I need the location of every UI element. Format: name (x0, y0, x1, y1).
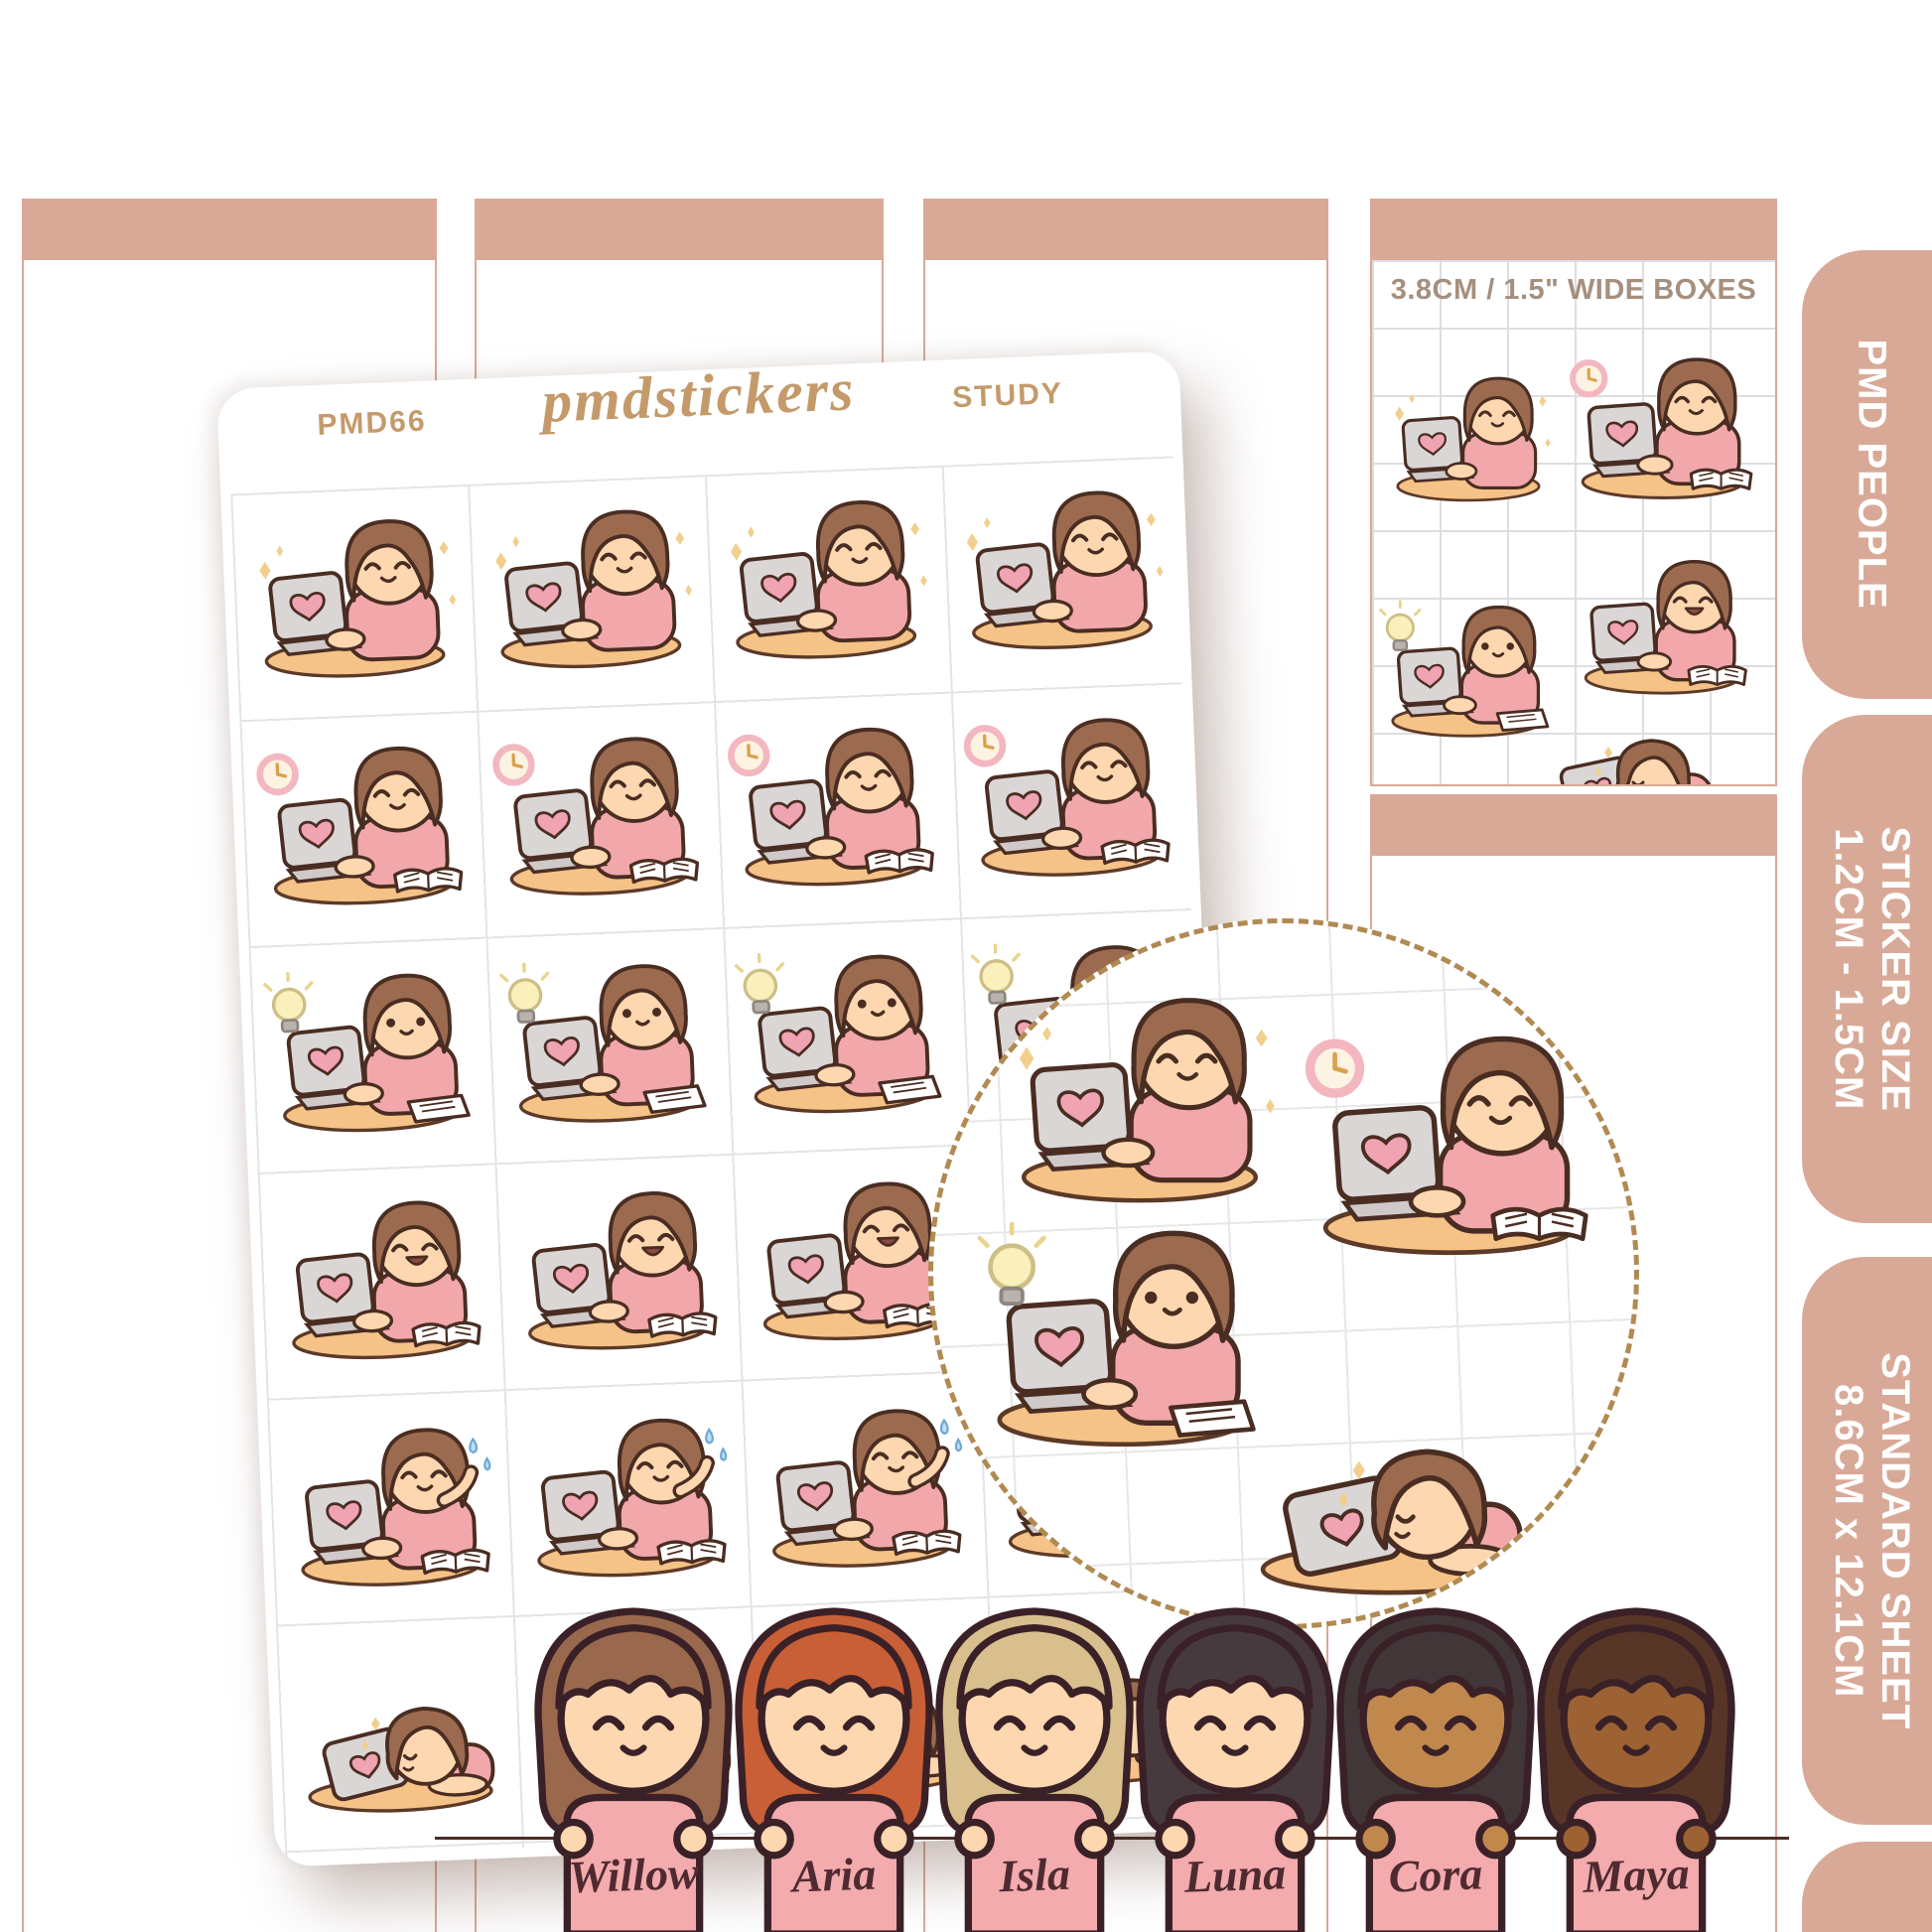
sticker-clock-book (1295, 1027, 1604, 1275)
character-name-luna: Luna (1125, 1845, 1345, 1905)
character-row: Willow Aria Isla Luna Cora Maya (427, 1579, 1807, 1932)
tab-label: 8.6CM x 12.1CM (1825, 1352, 1871, 1729)
wide-box-sample: 3.8CM / 1.5" WIDE BOXES (1370, 199, 1777, 786)
tab-sticker-size: STICKER SIZE 1.2CM - 1.5CM (1802, 715, 1932, 1223)
sticker-bulb-note (969, 1221, 1275, 1465)
zoom-circle-stickers (933, 923, 1634, 1624)
sheet-sticker-bulb-note-2 (484, 929, 729, 1166)
planner-box-header (925, 201, 1326, 260)
character-name-willow: Willow (523, 1845, 744, 1905)
sheet-sticker-bulb-note-1 (249, 939, 493, 1175)
tab-label: STICKER SIZE (1871, 826, 1918, 1112)
sheet-sticker-sparkle-2 (467, 475, 711, 711)
sheet-sticker-typing-2 (493, 1157, 738, 1393)
wide-box-body: 3.8CM / 1.5" WIDE BOXES (1372, 260, 1775, 784)
tab-label-wrap: STANDARD SHEET 8.6CM x 12.1CM (1825, 1352, 1918, 1729)
sticker-sparkle (1380, 371, 1557, 517)
sheet-sticker-clock-book-4 (946, 683, 1190, 919)
planner-box-header (1372, 201, 1775, 260)
character-name-aria: Aria (724, 1845, 944, 1905)
tab-label-wrap: PMD PEOPLE (1848, 340, 1894, 610)
tab-partial (1802, 1842, 1932, 1932)
tab-label: PMD PEOPLE (1848, 340, 1894, 610)
sheet-category: STUDY (952, 377, 1064, 415)
sheet-sticker-clock-book-2 (476, 702, 720, 938)
zoom-detail-circle (928, 918, 1639, 1629)
sticker-clock-book (1563, 351, 1763, 517)
sheet-sticker-sparkle-4 (937, 456, 1181, 692)
sticker-sleep (1529, 687, 1727, 784)
tab-label: STANDARD SHEET (1871, 1352, 1918, 1729)
tab-pmd-people: PMD PEOPLE (1802, 250, 1932, 699)
tab-label: 1.2CM - 1.5CM (1825, 826, 1871, 1112)
tab-standard-sheet: STANDARD SHEET 8.6CM x 12.1CM (1802, 1257, 1932, 1825)
sheet-sticker-sparkle-1 (230, 484, 475, 721)
sheet-sticker-bulb-note-3 (720, 920, 964, 1157)
character-name-cora: Cora (1325, 1845, 1546, 1905)
sheet-sticker-typing-1 (258, 1166, 502, 1402)
planner-box-header (1372, 796, 1775, 856)
character-name-isla: Isla (924, 1845, 1145, 1905)
planner-box-header (24, 201, 435, 260)
wide-box-stickers (1372, 260, 1775, 784)
product-image: 3.8CM / 1.5" WIDE BOXES PMD66 pmdsticker… (0, 0, 1932, 1932)
character-name-maya: Maya (1526, 1845, 1746, 1905)
sheet-sticker-sparkle-3 (702, 466, 946, 702)
sticker-sparkle (995, 989, 1285, 1221)
sheet-sticker-clock-book-1 (239, 712, 483, 948)
planner-box-header (477, 201, 882, 260)
sheet-sticker-clock-book-3 (711, 693, 955, 929)
tab-label-wrap: STICKER SIZE 1.2CM - 1.5CM (1825, 826, 1918, 1112)
